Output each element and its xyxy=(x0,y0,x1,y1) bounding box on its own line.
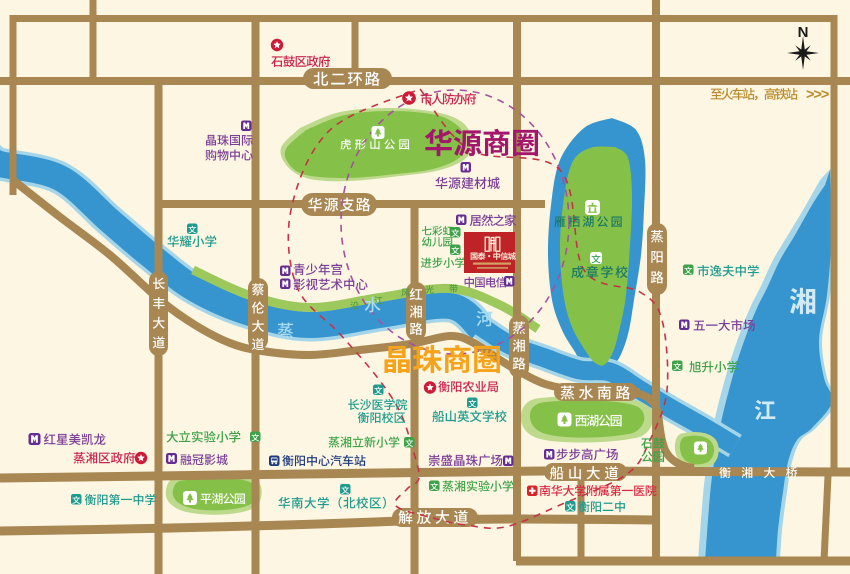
svg-text:>>>: >>> xyxy=(806,87,829,103)
svg-text:N: N xyxy=(798,24,809,41)
